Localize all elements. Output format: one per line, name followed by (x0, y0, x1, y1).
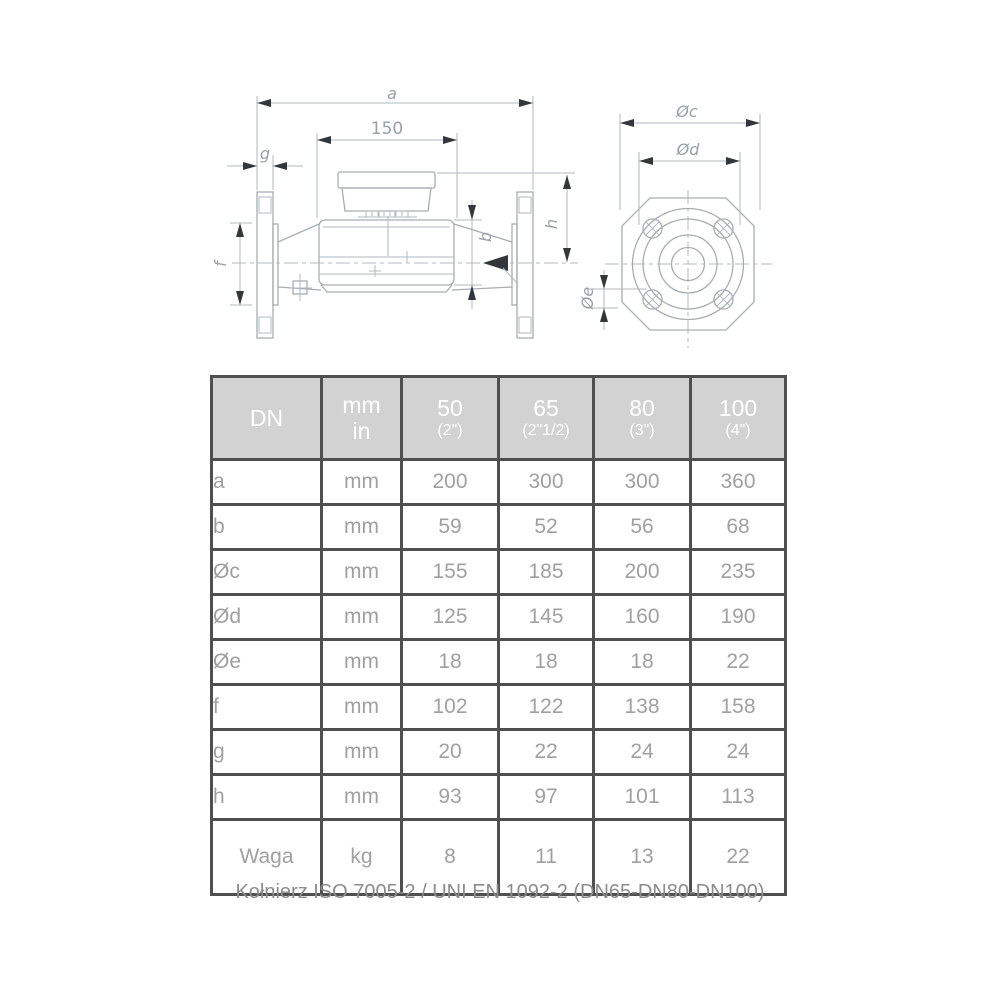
dimension-e: Øe (578, 270, 646, 330)
table-row-a: a mm 200 300 300 360 (212, 460, 786, 505)
drain-plug (288, 274, 312, 301)
dim-label-150: 150 (371, 119, 403, 139)
front-view: Øc Ød Øe (578, 102, 772, 348)
cell-value: 24 (691, 730, 786, 775)
table-row-c: Øc mm 155 185 200 235 (212, 550, 786, 595)
cell-value: 102 (402, 685, 499, 730)
row-unit: mm (322, 685, 402, 730)
datasheet-page: a 150 g (0, 0, 1000, 1000)
row-label: Øe (212, 640, 322, 685)
cell-value: 185 (499, 550, 594, 595)
table-row-d: Ød mm 125 145 160 190 (212, 595, 786, 640)
dimension-g: g (227, 144, 303, 190)
table-row-h: h mm 93 97 101 113 (212, 775, 786, 820)
row-label: b (212, 505, 322, 550)
header-dn50: 50 (2") (402, 377, 499, 460)
dimension-d: Ød (639, 140, 740, 225)
register-head (338, 172, 435, 217)
table-row-e: Øe mm 18 18 18 22 (212, 640, 786, 685)
header-dn100: 100 (4") (691, 377, 786, 460)
cell-value: 122 (499, 685, 594, 730)
header-units: mm in (322, 377, 402, 460)
header-dn65: 65 (2"1/2) (499, 377, 594, 460)
header-dn: DN (212, 377, 322, 460)
flow-direction-arrow (483, 255, 518, 284)
cell-value: 190 (691, 595, 786, 640)
dimension-b: b (454, 200, 495, 309)
row-unit: mm (322, 775, 402, 820)
cell-value: 93 (402, 775, 499, 820)
cell-value: 18 (499, 640, 594, 685)
dimension-150: 150 (317, 119, 457, 218)
cell-value: 158 (691, 685, 786, 730)
cell-value: 18 (594, 640, 691, 685)
cell-value: 360 (691, 460, 786, 505)
dimension-h: h (437, 173, 575, 262)
cell-value: 97 (499, 775, 594, 820)
cell-value: 200 (402, 460, 499, 505)
cell-value: 22 (499, 730, 594, 775)
table-row-f: f mm 102 122 138 158 (212, 685, 786, 730)
cell-value: 155 (402, 550, 499, 595)
dim-label-f: f (211, 259, 230, 267)
dim-label-g: g (260, 144, 270, 163)
cell-value: 20 (402, 730, 499, 775)
cell-value: 200 (594, 550, 691, 595)
table-row-g: g mm 20 22 24 24 (212, 730, 786, 775)
row-unit: mm (322, 460, 402, 505)
row-label: g (212, 730, 322, 775)
cell-value: 113 (691, 775, 786, 820)
cell-value: 101 (594, 775, 691, 820)
row-unit: mm (322, 730, 402, 775)
row-label: h (212, 775, 322, 820)
cell-value: 235 (691, 550, 786, 595)
row-unit: mm (322, 550, 402, 595)
row-unit: mm (322, 505, 402, 550)
table-header-row: DN mm in 50 (2") 65 (2"1/2) 80 (3") (212, 377, 786, 460)
cell-value: 138 (594, 685, 691, 730)
dim-label-e: Øe (578, 287, 597, 311)
left-flange (257, 192, 321, 338)
row-label: Ød (212, 595, 322, 640)
side-view: a 150 g (211, 84, 578, 338)
cell-value: 56 (594, 505, 691, 550)
dimension-table: DN mm in 50 (2") 65 (2"1/2) 80 (3") (210, 375, 787, 896)
row-unit: mm (322, 640, 402, 685)
cell-value: 24 (594, 730, 691, 775)
cell-value: 18 (402, 640, 499, 685)
table-row-b: b mm 59 52 56 68 (212, 505, 786, 550)
technical-drawing: a 150 g (200, 60, 800, 370)
dim-label-d: Ød (676, 140, 701, 159)
cell-value: 125 (402, 595, 499, 640)
cell-value: 22 (691, 640, 786, 685)
row-label: Øc (212, 550, 322, 595)
cell-value: 300 (499, 460, 594, 505)
dim-label-c: Øc (675, 102, 698, 121)
cell-value: 160 (594, 595, 691, 640)
dim-label-a: a (387, 84, 397, 103)
cell-value: 145 (499, 595, 594, 640)
dim-label-b: b (476, 232, 495, 242)
meter-body (319, 216, 454, 292)
header-dn80: 80 (3") (594, 377, 691, 460)
cell-value: 52 (499, 505, 594, 550)
row-label: f (212, 685, 322, 730)
cell-value: 59 (402, 505, 499, 550)
flange-standard-note: Kołnierz ISO 7005-2 / UNI EN 1092-2 (DN6… (150, 881, 850, 904)
row-unit: mm (322, 595, 402, 640)
cell-value: 68 (691, 505, 786, 550)
row-label: a (212, 460, 322, 505)
dimension-f: f (211, 223, 252, 305)
cell-value: 300 (594, 460, 691, 505)
dim-label-h: h (542, 219, 561, 229)
